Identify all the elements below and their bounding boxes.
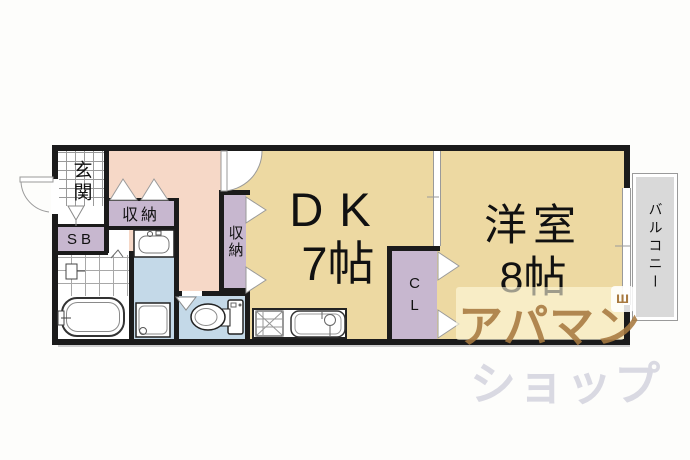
sliding-partition — [433, 151, 441, 246]
entrance-label: 玄関 — [60, 153, 102, 211]
kitchen-counter — [252, 308, 347, 339]
bathroom-doorway — [109, 227, 129, 255]
floor-plan: 玄関 SB 収納 収納 DK 7帖 CL 洋室 8帖 バルコニー アパマン ш … — [0, 0, 690, 460]
dk-storage-label: 収納 — [224, 199, 246, 285]
wall — [52, 251, 108, 255]
toilet-door-opening — [182, 291, 202, 296]
balcony-label: バルコニー — [637, 177, 674, 317]
wall — [245, 291, 250, 339]
dk-name: DK — [289, 183, 386, 237]
closet-label: CL — [392, 266, 437, 328]
hall-storage-label: 収納 — [108, 200, 174, 226]
watermark-mascot: ш — [611, 286, 634, 312]
wall — [224, 288, 250, 293]
wall — [129, 251, 134, 339]
dk-area: 7帖 — [301, 237, 374, 291]
wall — [104, 226, 179, 230]
shoe-box-label: SB — [58, 227, 104, 251]
room-washroom — [134, 230, 174, 339]
room-bathroom — [58, 255, 129, 339]
entrance-door-arc — [20, 177, 53, 212]
wall — [174, 198, 179, 339]
room-toilet — [179, 296, 245, 339]
western-name: 洋室 — [484, 201, 582, 253]
entrance-door-opening — [51, 179, 59, 214]
bathroom-tile-floor — [58, 255, 129, 296]
watermark-mascot-glyph: ш — [616, 290, 629, 308]
watermark-line2: ショップ — [470, 348, 662, 414]
